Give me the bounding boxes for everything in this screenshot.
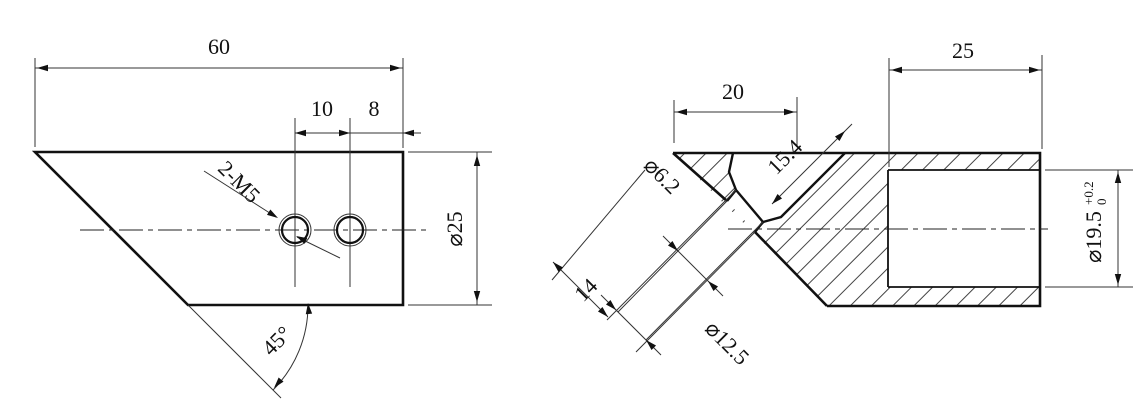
dimension-20: 20 bbox=[674, 79, 797, 146]
dim-8-label: 8 bbox=[369, 96, 380, 121]
left-view: 60 10 8 ⌀25 bbox=[35, 34, 492, 398]
ext-line bbox=[646, 222, 763, 340]
angle-45-label: 45° bbox=[257, 321, 296, 360]
dimension-14: 14 bbox=[551, 260, 611, 320]
arrowhead bbox=[37, 65, 48, 71]
ext-line bbox=[618, 201, 727, 312]
dimension-60: 60 bbox=[35, 34, 403, 148]
arrowhead bbox=[474, 155, 480, 166]
dimension-10-8: 10 8 bbox=[295, 96, 421, 136]
dim-60-label: 60 bbox=[208, 34, 230, 59]
ext-line bbox=[607, 190, 736, 320]
thread-callout-2M5: 2-M5 bbox=[204, 156, 340, 258]
drawing-sheet: 60 10 8 ⌀25 bbox=[0, 0, 1144, 413]
arrowhead bbox=[403, 130, 414, 136]
dim-10-label: 10 bbox=[311, 96, 333, 121]
arrowhead bbox=[1115, 274, 1121, 285]
dimension-25: 25 bbox=[889, 38, 1042, 167]
arrowhead bbox=[272, 378, 284, 391]
dim-dia19-5-label: ⌀19.5 bbox=[1081, 211, 1106, 263]
arrowhead bbox=[1115, 172, 1121, 183]
dim-20-label: 20 bbox=[722, 79, 744, 104]
dim-dia12-5-label: ⌀12.5 bbox=[700, 316, 754, 370]
right-section-view: 20 25 ⌀19.5 +0.2 0 bbox=[551, 38, 1133, 370]
dim-dia25-label: ⌀25 bbox=[442, 211, 467, 246]
arrowhead bbox=[676, 109, 687, 115]
dimension-dia25: ⌀25 bbox=[408, 152, 492, 305]
ext-line bbox=[552, 170, 645, 280]
arrowhead bbox=[891, 67, 902, 73]
arrowhead bbox=[1029, 67, 1040, 73]
dim-dia19-5-tol-lower: 0 bbox=[1094, 199, 1109, 206]
arrowhead bbox=[390, 65, 401, 71]
arrowhead bbox=[784, 109, 795, 115]
dimension-dia19-5: ⌀19.5 +0.2 0 bbox=[1045, 170, 1133, 287]
arrowhead bbox=[267, 209, 280, 220]
dim-14-label: 14 bbox=[569, 273, 602, 306]
dim-15-4-label: 15.4 bbox=[762, 134, 807, 179]
drawing-canvas: 60 10 8 ⌀25 bbox=[0, 0, 1144, 413]
arrowhead bbox=[339, 130, 350, 136]
dimension-45deg: 45° bbox=[257, 303, 312, 390]
dim-25-label: 25 bbox=[952, 38, 974, 63]
arrowhead bbox=[295, 130, 306, 136]
arrowhead bbox=[474, 291, 480, 302]
